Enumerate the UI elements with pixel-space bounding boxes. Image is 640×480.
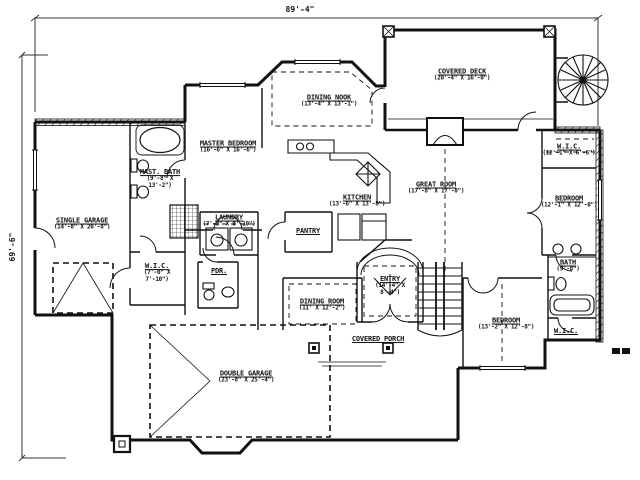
floorplan-sheet: SINGLE GARAGE (14'-8" X 20'-8") MAST. BA… bbox=[0, 0, 640, 480]
stairs-icon bbox=[418, 262, 462, 336]
floorplan-drawing bbox=[0, 0, 640, 480]
toilet-icon-master-1 bbox=[131, 159, 149, 172]
scale-marker bbox=[612, 348, 630, 354]
interior-walls bbox=[130, 58, 596, 368]
dimension-lines bbox=[19, 15, 602, 461]
kitchen-counters bbox=[288, 140, 390, 240]
cooktop-icon bbox=[356, 162, 380, 186]
fridge-icon bbox=[338, 214, 360, 240]
toilet-icon-powder bbox=[203, 283, 214, 289]
oven-icon bbox=[362, 214, 386, 240]
sink-icon-powder bbox=[222, 287, 234, 297]
toilet-icon-master-2 bbox=[131, 185, 149, 198]
shower-icon bbox=[170, 205, 198, 238]
bathtub-icon bbox=[136, 125, 184, 155]
fireplace-icon bbox=[427, 118, 463, 145]
entry-arch bbox=[357, 248, 423, 295]
sink-icon bbox=[297, 143, 304, 150]
garage-door-dashed bbox=[53, 263, 330, 437]
powder-fixtures bbox=[203, 283, 234, 300]
garage-post bbox=[114, 436, 130, 452]
spiral-staircase-icon bbox=[558, 55, 608, 105]
porch-posts bbox=[309, 343, 393, 366]
bathtub-icon-right bbox=[550, 295, 594, 315]
exterior-walls bbox=[35, 30, 600, 453]
toilet-icon-bath bbox=[548, 277, 554, 290]
sink-icon-bath-2 bbox=[571, 244, 581, 254]
